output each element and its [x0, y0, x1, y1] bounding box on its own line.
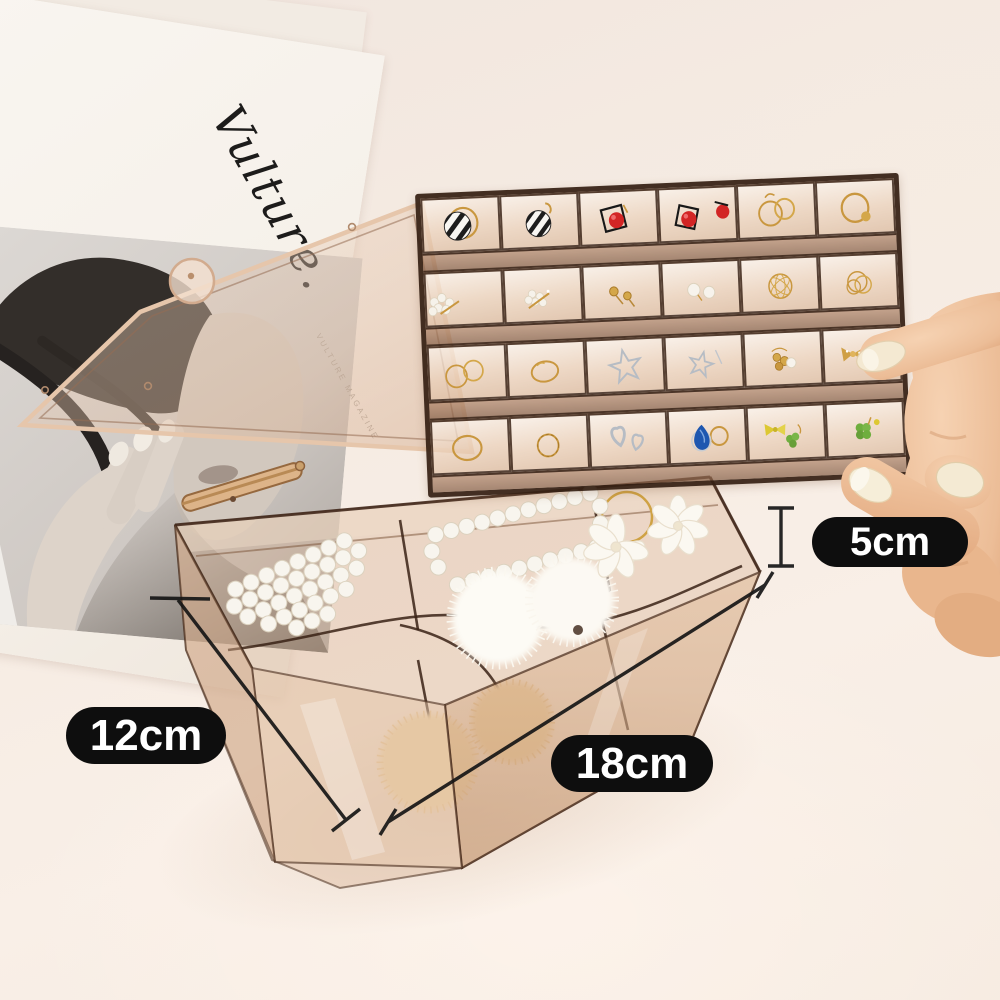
dimension-badge-18cm: 18cm	[551, 735, 713, 792]
dimension-lines-layer	[0, 0, 1000, 1000]
dimension-badge-12cm-label: 12cm	[90, 711, 203, 761]
dimension-badge-18cm-label: 18cm	[576, 739, 689, 789]
dimension-badge-5cm: 5cm	[812, 517, 968, 567]
dimension-badge-5cm-label: 5cm	[850, 520, 930, 565]
dimension-badge-12cm: 12cm	[66, 707, 226, 764]
dimension-line-5cm	[768, 508, 794, 566]
product-photo-stage: Vulture. VULTURE MAGAZINE	[0, 0, 1000, 1000]
dimension-line-18cm	[380, 572, 773, 835]
